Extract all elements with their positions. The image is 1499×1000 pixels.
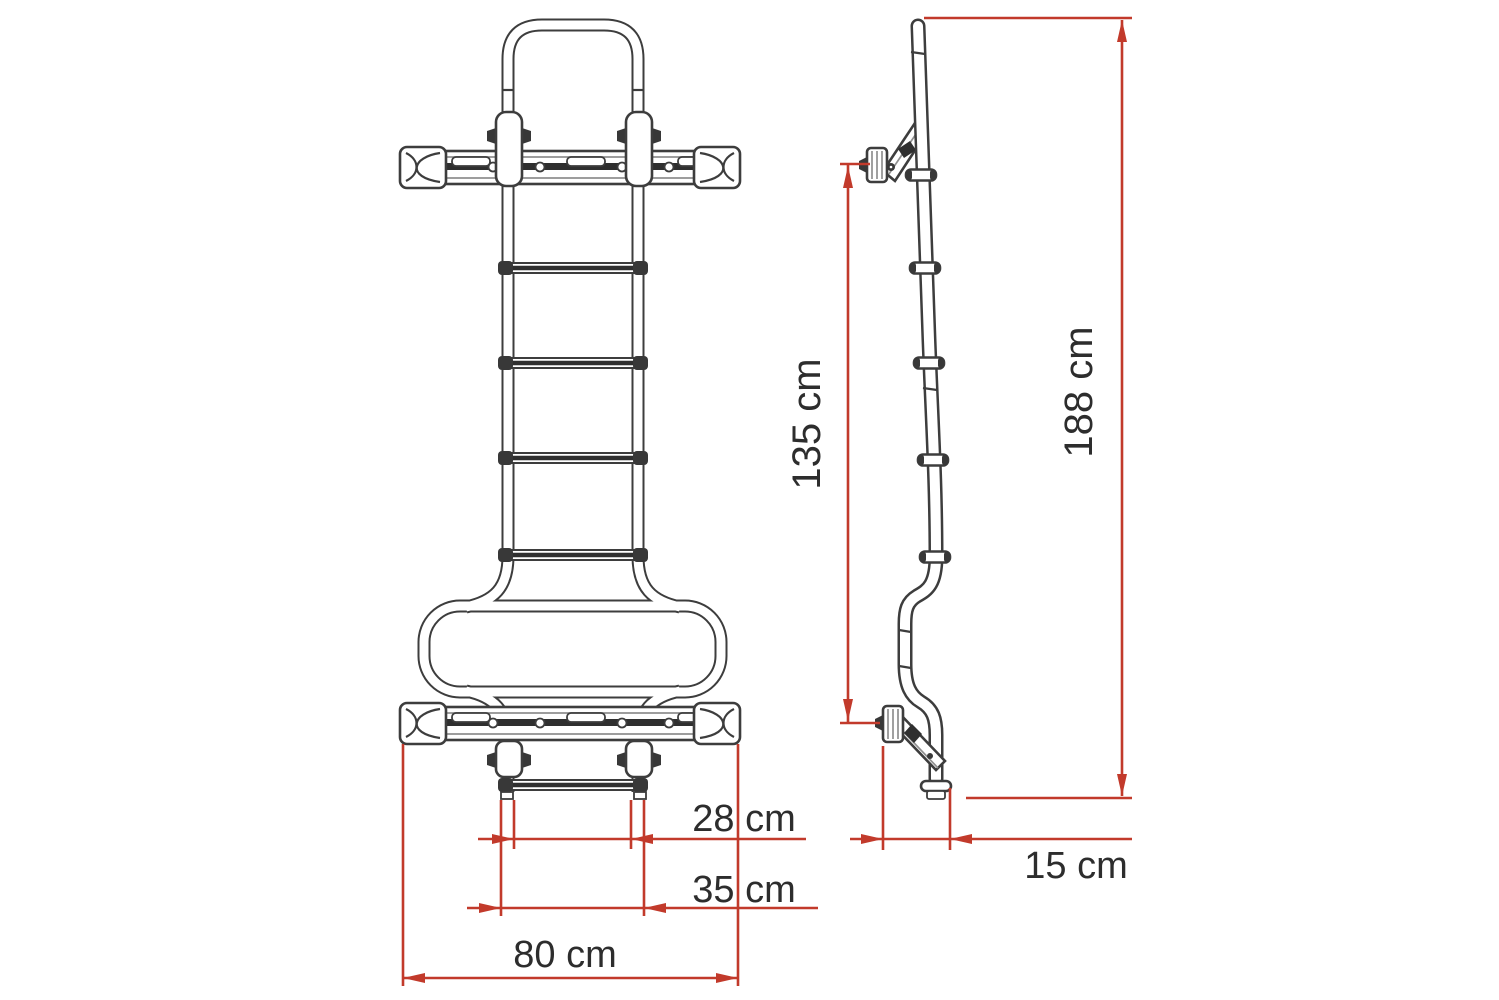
front-view xyxy=(400,25,740,799)
ladder-dimension-diagram: 28 cm 35 cm 80 cm 135 cm xyxy=(0,0,1499,1000)
dimension-bracket-span: 135 cm xyxy=(785,164,880,723)
bar-slot xyxy=(452,713,490,722)
collar xyxy=(906,170,936,181)
collar xyxy=(918,455,948,466)
bar-end-cap-left xyxy=(400,147,446,188)
screw-hole xyxy=(536,719,545,728)
dimension-label-188cm: 188 cm xyxy=(1057,326,1101,457)
dimension-label-80cm: 80 cm xyxy=(513,934,616,976)
dimension-label-15cm: 15 cm xyxy=(1024,845,1127,887)
bar-slot xyxy=(452,157,490,166)
bar-end-cap-right xyxy=(694,147,740,188)
screw-hole xyxy=(536,163,545,172)
collar xyxy=(914,358,944,369)
screw-hole xyxy=(665,163,674,172)
dimension-label-28cm: 28 cm xyxy=(692,798,795,840)
rung xyxy=(498,356,648,370)
dimension-rung-inner-width: 28 cm xyxy=(478,798,806,849)
rung xyxy=(498,548,648,562)
bar-end-cap-right xyxy=(694,703,740,744)
top-mounting-bar xyxy=(400,147,740,188)
front-tubes xyxy=(424,25,721,792)
diagram-svg: 28 cm 35 cm 80 cm 135 cm xyxy=(0,0,1499,1000)
bar-slot xyxy=(567,157,605,166)
screw-hole xyxy=(489,719,498,728)
step-foot xyxy=(501,792,513,799)
bar-slot xyxy=(567,713,605,722)
rung xyxy=(498,451,648,465)
bottom-mounting-bar xyxy=(400,703,740,744)
rungs xyxy=(498,261,648,562)
dimension-label-135cm: 135 cm xyxy=(785,358,829,489)
step-foot xyxy=(634,792,646,799)
dimension-wall-offset: 15 cm xyxy=(850,746,1132,887)
bottom-step xyxy=(498,778,648,799)
bottom-leg-sleeves xyxy=(487,741,661,777)
screw-hole xyxy=(665,719,674,728)
side-view xyxy=(859,26,951,799)
rung xyxy=(498,261,648,275)
screw-hole xyxy=(618,719,627,728)
dimension-label-35cm: 35 cm xyxy=(692,869,795,911)
bar-end-cap-left xyxy=(400,703,446,744)
collar xyxy=(920,552,950,563)
collar xyxy=(910,263,940,274)
bracket-screw xyxy=(927,753,933,759)
dimension-overall-height: 188 cm xyxy=(924,18,1132,798)
side-foot xyxy=(921,781,951,799)
